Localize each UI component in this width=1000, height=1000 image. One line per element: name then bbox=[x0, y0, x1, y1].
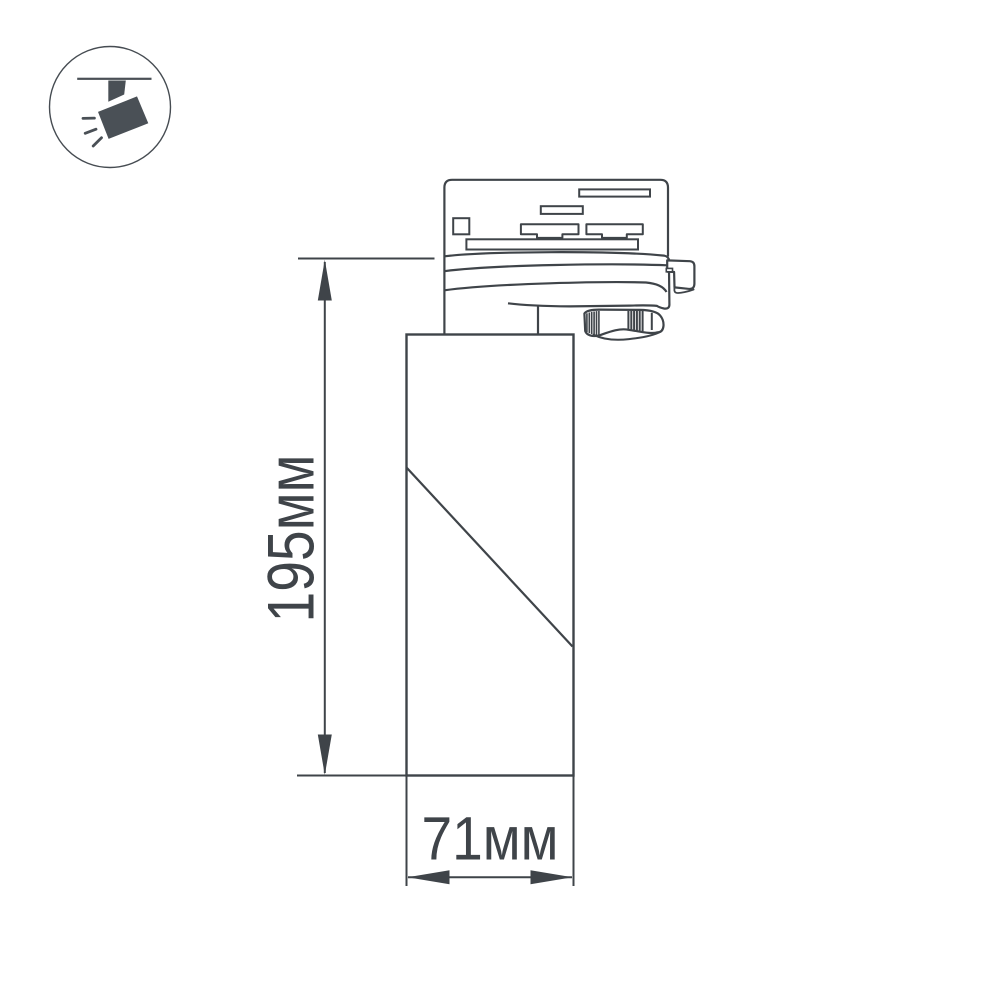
svg-text:195мм: 195мм bbox=[254, 455, 328, 623]
svg-text:71мм: 71мм bbox=[422, 805, 559, 873]
